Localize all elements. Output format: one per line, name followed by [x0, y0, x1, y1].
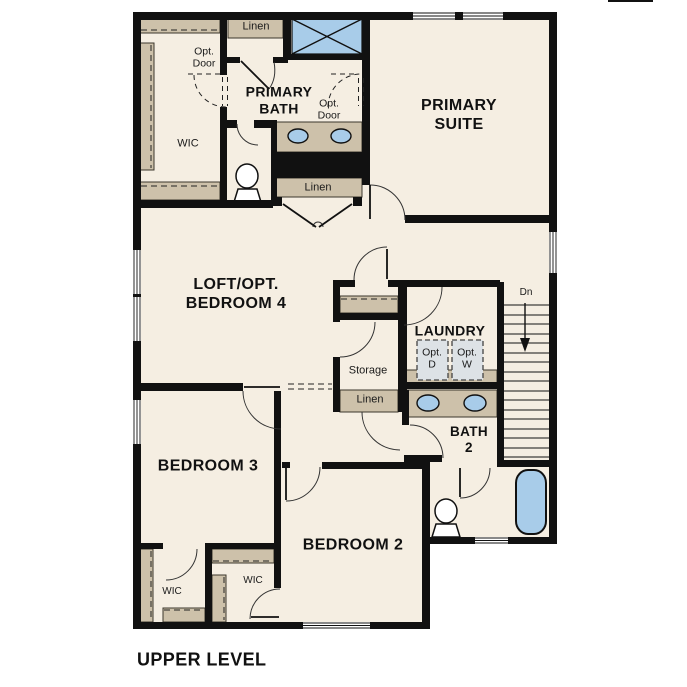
label-primary-bath: PRIMARY BATH	[246, 83, 313, 116]
label-stairs-down: Dn	[520, 287, 533, 299]
label-loft: LOFT/OPT. BEDROOM 4	[186, 276, 287, 314]
label-linen-top: Linen	[243, 21, 270, 34]
floor-plan-canvas	[0, 0, 687, 687]
label-opt-door-left: Opt. Door	[193, 46, 216, 71]
label-linen-mid: Linen	[357, 394, 384, 407]
label-opt-door-right: Opt. Door	[318, 98, 341, 123]
label-wic-bedroom3: WIC	[162, 586, 181, 598]
label-wic-bedroom2: WIC	[243, 575, 262, 587]
label-primary-suite: PRIMARY SUITE	[421, 97, 497, 135]
bathtub	[516, 470, 546, 534]
label-wic-primary: WIC	[177, 138, 198, 151]
shower	[292, 19, 362, 54]
label-bath2: BATH 2	[450, 424, 488, 456]
level-title: UPPER LEVEL	[137, 650, 266, 671]
label-laundry: LAUNDRY	[415, 323, 486, 340]
label-opt-dryer: Opt. D	[422, 347, 442, 372]
label-linen-hall: Linen	[305, 182, 332, 195]
label-bedroom3: BEDROOM 3	[158, 458, 259, 477]
floor-plan: Linen Opt. Door PRIMARY BATH Opt. Door P…	[0, 0, 687, 687]
label-opt-washer: Opt. W	[457, 347, 477, 372]
label-bedroom2: BEDROOM 2	[303, 537, 404, 556]
label-storage: Storage	[349, 365, 388, 378]
